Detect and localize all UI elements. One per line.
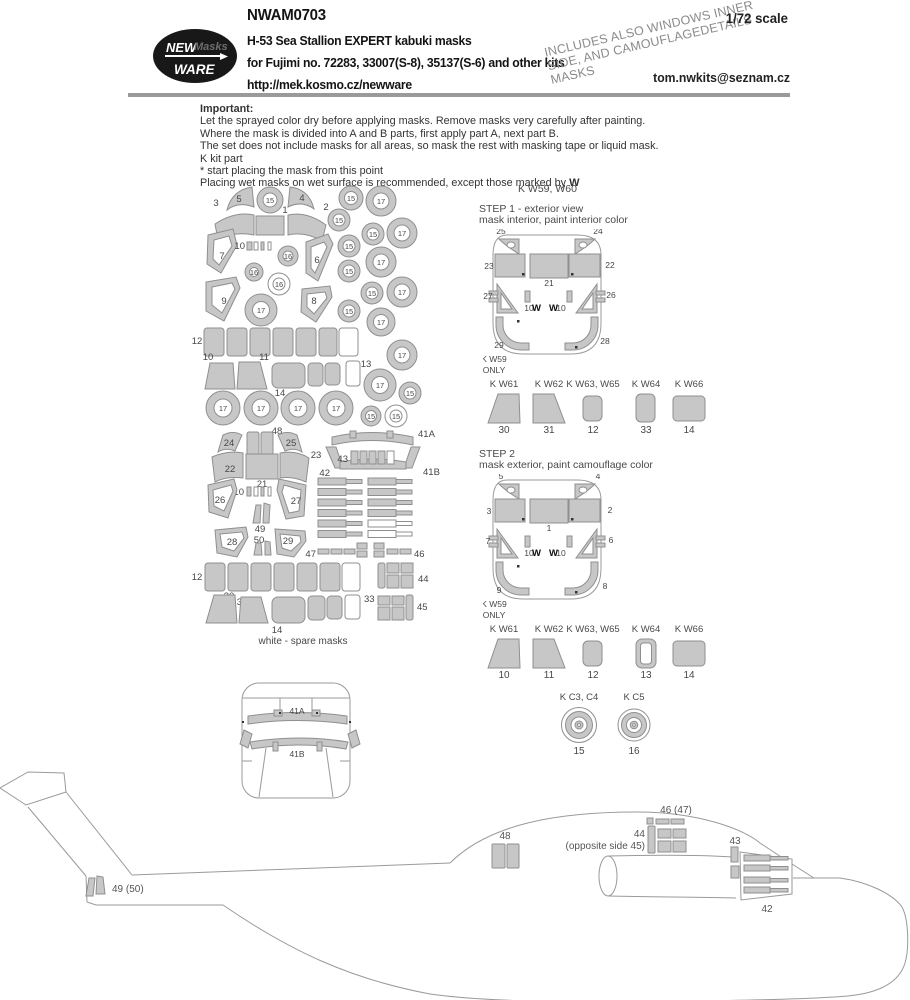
svg-text:27: 27 [483, 291, 493, 301]
svg-text:43: 43 [337, 454, 348, 465]
svg-text:33: 33 [364, 594, 375, 605]
svg-text:17: 17 [257, 306, 265, 315]
svg-text:ONLY: ONLY [483, 610, 506, 620]
svg-text:26: 26 [606, 290, 616, 300]
bottom-mask-row: 30 31 33 45 14 [206, 591, 428, 636]
svg-text:10: 10 [203, 352, 214, 363]
square-masks-row12-lower: 12 44 [192, 563, 429, 591]
svg-text:10: 10 [234, 241, 245, 252]
svg-text:17: 17 [398, 351, 406, 360]
svg-text:W: W [532, 548, 541, 559]
step2-subtitle: mask exterior, paint camouflage color [479, 460, 653, 472]
svg-text:17: 17 [377, 197, 385, 206]
svg-text:K W59: K W59 [483, 599, 507, 609]
exhaust-strip-masks-42: 42 [318, 468, 412, 538]
svg-text:6: 6 [609, 535, 614, 545]
svg-text:6: 6 [314, 255, 319, 266]
svg-text:16: 16 [250, 268, 258, 277]
step2-diagram: 5 4 3 2 1 7 6 10W W10 9 8 K W59 ONLY [483, 474, 623, 622]
svg-text:16: 16 [284, 252, 292, 261]
svg-text:7: 7 [486, 536, 491, 546]
svg-text:44: 44 [418, 574, 429, 585]
side-view-masks [86, 818, 788, 896]
svg-text:15: 15 [406, 389, 414, 398]
svg-text:5: 5 [499, 474, 504, 481]
svg-text:2: 2 [323, 202, 328, 213]
svg-text:4: 4 [596, 474, 601, 481]
svg-text:17: 17 [219, 404, 227, 413]
svg-text:13: 13 [361, 359, 372, 370]
spare-masks-caption: white - spare masks [258, 636, 348, 647]
svg-text:21: 21 [544, 278, 554, 288]
cockpit-masks-b: 48 24 25 23 22 21 10 26 27 49 50 28 29 [208, 426, 321, 557]
svg-text:15: 15 [367, 412, 375, 421]
svg-text:10: 10 [556, 303, 566, 313]
svg-text:10: 10 [556, 548, 566, 558]
svg-text:K W59: K W59 [483, 354, 507, 364]
svg-text:41A: 41A [418, 429, 436, 440]
svg-text:5: 5 [236, 194, 241, 205]
contact-email: tom.nwkits@seznam.cz [649, 70, 790, 85]
svg-text:16: 16 [275, 280, 283, 289]
svg-text:14: 14 [275, 388, 286, 399]
svg-text:11: 11 [259, 352, 269, 363]
side-view-diagram: 49 (50) 48 46 (47) 44 (opposite side 45)… [0, 755, 910, 1000]
svg-text:W: W [532, 303, 541, 314]
important-heading: Important: [200, 103, 658, 115]
mask-item: K W66 14 [661, 624, 717, 681]
step1-kit-note: K W59, W60 [518, 183, 577, 195]
svg-text:9: 9 [221, 296, 226, 307]
product-url: http://mek.kosmo.cz/newware [247, 77, 412, 92]
svg-text:41B: 41B [423, 467, 440, 478]
wheel-item: K C5 16 [608, 692, 660, 757]
svg-text:7: 7 [219, 251, 224, 262]
scale-note: 1/72 scale [696, 10, 788, 26]
svg-text:ONLY: ONLY [483, 365, 506, 375]
svg-text:9: 9 [497, 585, 502, 595]
svg-text:1: 1 [547, 523, 552, 533]
svg-text:45: 45 [417, 602, 428, 613]
svg-text:15: 15 [345, 307, 353, 316]
svg-text:17: 17 [257, 404, 265, 413]
small-masks-47-46: 47 46 [305, 543, 424, 560]
svg-text:8: 8 [603, 581, 608, 591]
label-42: 42 [761, 904, 773, 915]
mask-item: K W63, W65 12 [565, 379, 621, 436]
svg-text:2: 2 [608, 505, 613, 515]
important-notes: Important: Let the sprayed color dry bef… [200, 103, 658, 190]
logo-ware: WARE [174, 62, 215, 77]
svg-text:15: 15 [345, 242, 353, 251]
window-mask-row1: K W61 30 K W62 31 K W63, W65 12 K W64 33… [478, 379, 732, 443]
svg-text:17: 17 [376, 381, 384, 390]
svg-text:42: 42 [319, 468, 330, 479]
svg-text:22: 22 [225, 464, 236, 475]
svg-text:15: 15 [368, 289, 376, 298]
svg-text:8: 8 [311, 296, 316, 307]
svg-text:15: 15 [347, 194, 355, 203]
svg-text:25: 25 [496, 229, 506, 236]
svg-text:4: 4 [299, 193, 304, 204]
svg-text:15: 15 [369, 230, 377, 239]
svg-text:22: 22 [605, 260, 615, 270]
svg-text:28: 28 [227, 537, 238, 548]
svg-text:1: 1 [282, 205, 287, 216]
svg-text:23: 23 [311, 450, 322, 461]
mask-item: K W66 14 [661, 379, 717, 436]
svg-text:29: 29 [283, 536, 294, 547]
mask-item: K W63, W65 12 [565, 624, 621, 681]
svg-text:24: 24 [224, 438, 235, 449]
svg-text:15: 15 [335, 216, 343, 225]
product-code: NWAM0703 [247, 7, 326, 25]
label-49: 49 (50) [112, 884, 144, 895]
svg-text:17: 17 [377, 318, 385, 327]
svg-text:27: 27 [291, 496, 302, 507]
svg-text:3: 3 [213, 198, 218, 209]
product-subtitle: for Fujimi no. 72283, 33007(S-8), 35137(… [247, 55, 564, 70]
header-divider [128, 93, 790, 97]
newware-logo: NEW Masks WARE [152, 27, 238, 87]
svg-text:28: 28 [600, 336, 610, 346]
square-masks-row12-upper: 12 [192, 328, 358, 356]
svg-text:12: 12 [192, 572, 203, 583]
label-43: 43 [729, 836, 741, 847]
svg-text:17: 17 [398, 229, 406, 238]
svg-text:24: 24 [593, 229, 603, 236]
svg-text:12: 12 [192, 336, 203, 347]
label-48: 48 [499, 831, 511, 842]
svg-text:15: 15 [392, 412, 400, 421]
wheel-mask-section: K C3, C4 15 K C5 16 [540, 692, 700, 762]
svg-text:23: 23 [484, 261, 494, 271]
header: NEW Masks WARE NWAM0703 H-53 Sea Stallio… [0, 0, 910, 100]
svg-text:25: 25 [286, 438, 297, 449]
label-46: 46 (47) [660, 805, 692, 816]
svg-text:46: 46 [414, 549, 425, 560]
mask-sheet: 3 5 4 1 2 10 7 6 9 8 15 15 17 15 17 15 1… [190, 185, 470, 647]
step1-diagram: 25 24 23 22 21 27 26 10W W10 29 28 K W59… [483, 229, 623, 377]
svg-text:26: 26 [215, 495, 226, 506]
step1-subtitle: mask interior, paint interior color [479, 215, 628, 227]
window-mask-row2: K W61 10 K W62 11 K W63, W65 12 K W64 13… [478, 624, 732, 688]
front-view-41a-label: 41A [289, 706, 304, 716]
svg-text:17: 17 [294, 404, 302, 413]
wheel-item: K C3, C4 15 [548, 692, 610, 757]
product-title: H-53 Sea Stallion EXPERT kabuki masks [247, 33, 472, 48]
svg-text:17: 17 [332, 404, 340, 413]
logo-masks: Masks [194, 41, 228, 53]
svg-text:47: 47 [305, 549, 316, 560]
svg-text:29: 29 [494, 340, 504, 350]
svg-text:17: 17 [377, 258, 385, 267]
svg-text:14: 14 [272, 625, 283, 636]
windshield-masks-41: 41A 43 41B [326, 429, 440, 478]
label-44: 44 [634, 829, 646, 840]
svg-text:15: 15 [266, 196, 274, 205]
instruction-sheet: { "header": { "logo": {"new": "NEW", "ma… [0, 0, 910, 1000]
svg-text:17: 17 [398, 288, 406, 297]
svg-text:15: 15 [345, 267, 353, 276]
svg-text:49: 49 [255, 524, 266, 535]
svg-text:3: 3 [487, 506, 492, 516]
label-45: (opposite side 45) [566, 841, 646, 852]
